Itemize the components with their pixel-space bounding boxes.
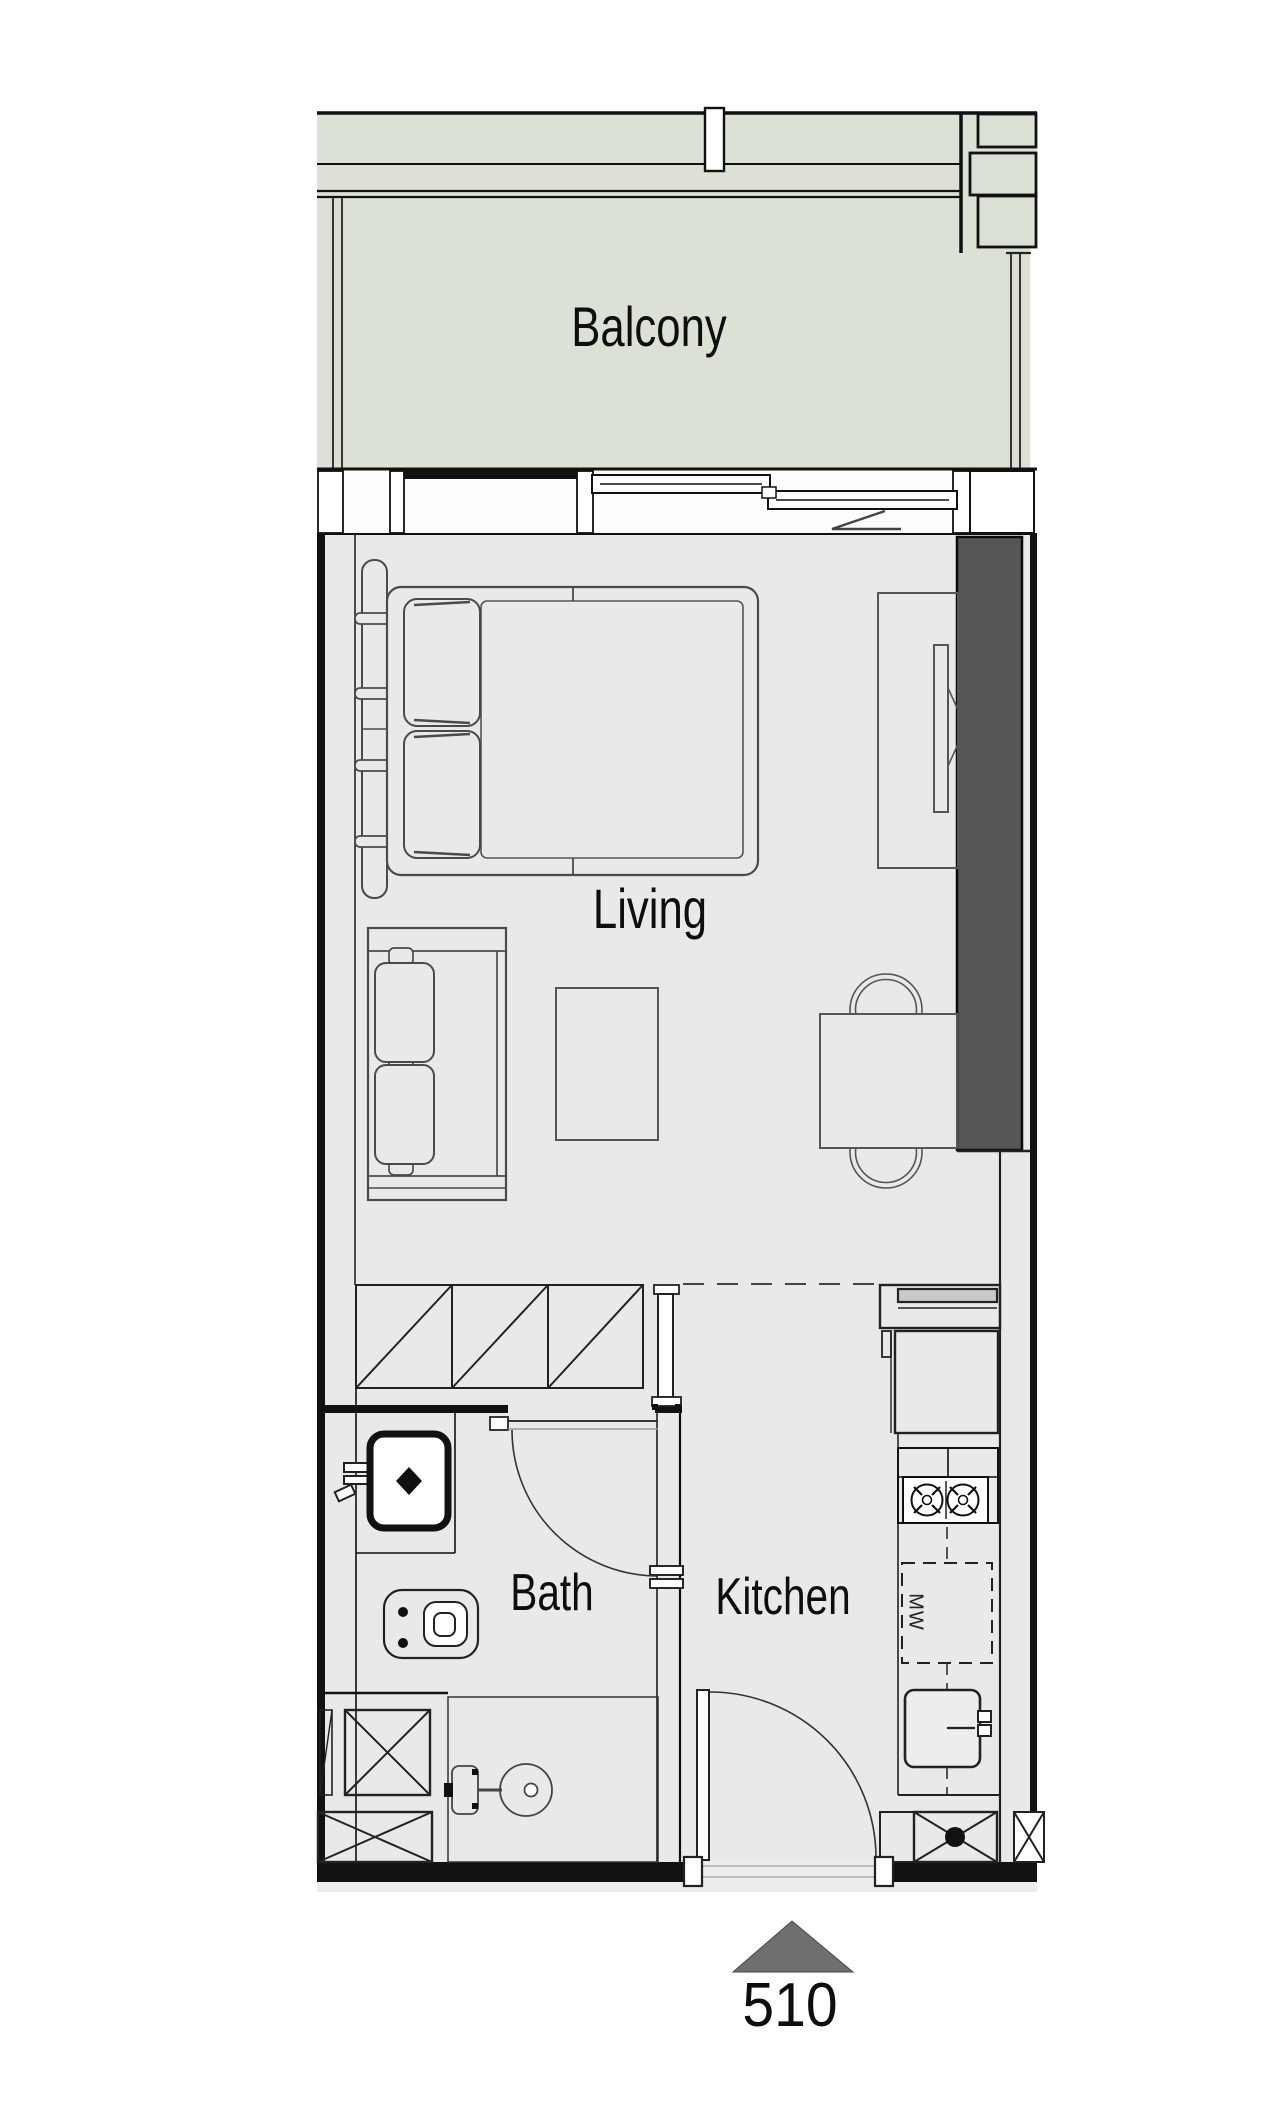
bed <box>355 560 758 898</box>
sliding-door-direction-arrow-icon <box>832 511 901 529</box>
floor-plan: Balcony Living Bath Kitchen MW 510 <box>0 0 1285 2102</box>
microwave-label: MW <box>904 1593 927 1631</box>
shower <box>444 1697 658 1862</box>
entry-door-swing-arc <box>710 1692 876 1858</box>
sofa-cushion <box>375 1065 434 1164</box>
dining-set <box>820 974 957 1188</box>
toilet <box>384 1590 478 1658</box>
service-shafts-right <box>880 1812 1044 1862</box>
feature-wall <box>957 537 1022 1150</box>
sofa-cushion <box>375 963 434 1062</box>
bath-door-swing-arc <box>512 1430 658 1576</box>
balcony-label: Balcony <box>549 299 748 355</box>
fridge <box>895 1331 998 1433</box>
tv-screen <box>934 645 948 812</box>
living-label: Living <box>577 881 723 937</box>
sliding-door-panels <box>592 475 957 509</box>
wardrobe <box>356 1285 643 1388</box>
bath-door-leaf <box>658 1294 673 1397</box>
bath-sink <box>335 1434 448 1528</box>
entry-door <box>684 1690 893 1886</box>
entry-door-leaf <box>697 1690 709 1860</box>
sofa <box>368 928 506 1200</box>
window-wall <box>317 469 1037 534</box>
unit-number-label: 510 <box>738 1975 841 2037</box>
bath-label: Bath <box>499 1567 606 1619</box>
dining-table <box>820 1014 957 1148</box>
coffee-table <box>556 988 658 1140</box>
kitchen-sink <box>905 1690 991 1767</box>
stove <box>898 1448 998 1523</box>
bath-door <box>490 1285 681 1576</box>
tv-unit <box>878 593 958 868</box>
kitchen-label: Kitchen <box>696 1571 869 1623</box>
top-wall-structure <box>317 108 1037 253</box>
service-shafts-left <box>318 1710 432 1862</box>
entry-marker-triangle-icon <box>733 1921 853 1972</box>
